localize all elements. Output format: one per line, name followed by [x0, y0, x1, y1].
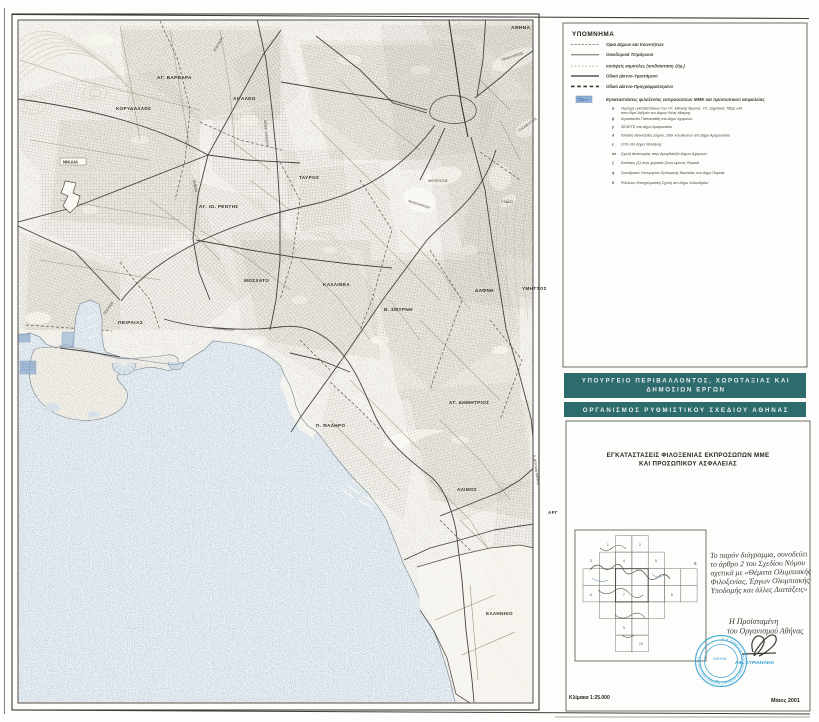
svg-text:ΥΜΗΤΤΟΣ: ΥΜΗΤΤΟΣ	[522, 286, 547, 291]
svg-text:ΥΠΟΥΡΓΕΙΟ ΠΕΡΙΒΑΛΛΟΝΤΟΣ, ΧΩΡΟΤ: ΥΠΟΥΡΓΕΙΟ ΠΕΡΙΒΑΛΛΟΝΤΟΣ, ΧΩΡΟΤΑΞΙΑΣ ΚΑΙ	[582, 378, 790, 385]
svg-text:ΑΓ. ΙΩ. ΡΕΝΤΗΣ: ΑΓ. ΙΩ. ΡΕΝΤΗΣ	[199, 204, 239, 209]
svg-text:ΟΡΓΑΝΙΣΜΟΣ ΡΥΘΜΙΣΤΙΚΟΥ ΣΧΕΔΙΟΥ: ΟΡΓΑΝΙΣΜΟΣ ΡΥΘΜΙΣΤΙΚΟΥ ΣΧΕΔΙΟΥ ΑΘΗΝΑΣ	[583, 407, 790, 414]
svg-text:ΟΤΕ στο Δήμο Παλλήνης: ΟΤΕ στο Δήμο Παλλήνης	[621, 143, 662, 147]
svg-text:ΚΑΙ ΠΡΟΣΩΠΙΚΟΥ ΑΣΦΑΛΕΙΑΣ: ΚΑΙ ΠΡΟΣΩΠΙΚΟΥ ΑΣΦΑΛΕΙΑΣ	[639, 461, 737, 468]
svg-text:9: 9	[623, 626, 625, 630]
svg-text:7: 7	[623, 593, 625, 597]
svg-text:ΑΘΗΝΑ: ΑΘΗΝΑ	[713, 657, 727, 661]
svg-text:ΔΗΜΟΣΙΩΝ ΕΡΓΩΝ: ΔΗΜΟΣΙΩΝ ΕΡΓΩΝ	[646, 387, 725, 394]
svg-text:θ: θ	[612, 181, 614, 185]
svg-text:ΔΑΦΝΗ: ΔΑΦΝΗ	[475, 288, 494, 293]
svg-text:ΕΛΛΗΝΙΚΟ: ΕΛΛΗΝΙΚΟ	[486, 611, 513, 616]
svg-text:3: 3	[590, 559, 592, 563]
svg-text:Η Προϊσταμένη: Η Προϊσταμένη	[728, 617, 778, 626]
svg-text:ΝΙΚΑΙΑ: ΝΙΚΑΙΑ	[63, 160, 79, 165]
svg-text:Συνεδριακό Υπουργείου Εμπορική: Συνεδριακό Υπουργείου Εμπορικής Ναυτιλία…	[620, 171, 725, 175]
svg-text:ΑΓ. ΔΗΜΗΤΡΙΟΣ: ΑΓ. ΔΗΜΗΤΡΙΟΣ	[449, 400, 489, 405]
svg-text:Εκτάσεις (Σ) στην χερσαία ζώνη: Εκτάσεις (Σ) στην χερσαία ζώνη λιμένος Π…	[621, 161, 700, 165]
svg-text:Κλίμακα 1:25.000: Κλίμακα 1:25.000	[569, 695, 610, 701]
svg-text:ΑΚΡΟΠΟΛΙΣ: ΑΚΡΟΠΟΛΙΣ	[428, 179, 448, 183]
svg-text:στ: στ	[612, 152, 616, 156]
svg-text:ΤΑΥΡΟΣ: ΤΑΥΡΟΣ	[299, 175, 319, 180]
svg-text:8: 8	[671, 593, 673, 597]
svg-text:ΣΤΑΔΙΟ: ΣΤΑΔΙΟ	[501, 200, 513, 204]
svg-text:10: 10	[639, 642, 643, 646]
svg-text:στον Άγιο Ανδρέα του Δήμου Νέα: στον Άγιο Ανδρέα του Δήμου Νέας Μάκρης	[621, 111, 691, 115]
svg-text:ΑΘΗΝΑ: ΑΘΗΝΑ	[511, 25, 531, 31]
svg-text:Οδικό Δίκτυο-Υφιστάμενο: Οδικό Δίκτυο-Υφιστάμενο	[606, 73, 658, 78]
svg-text:ΕΓΚΑΤΑΣΤΑΣΕΙΣ ΦΙΛΟΞΕΝΙΑΣ ΕΚΠΡΟ: ΕΓΚΑΤΑΣΤΑΣΕΙΣ ΦΙΛΟΞΕΝΙΑΣ ΕΚΠΡΟΣΩΠΩΝ ΜΜΕ	[607, 452, 770, 459]
svg-text:Β. ΣΜΥΡΝΗ: Β. ΣΜΥΡΝΗ	[384, 307, 413, 312]
svg-text:✶: ✶	[715, 679, 719, 685]
svg-text:ΑΡΓ: ΑΡΓ	[548, 510, 558, 515]
svg-text:Οδικό Δίκτυο-Προγραμματισμένο: Οδικό Δίκτυο-Προγραμματισμένο	[606, 84, 674, 89]
svg-text:ΜΟΣΧΑΤΟ: ΜΟΣΧΑΤΟ	[244, 278, 269, 283]
svg-text:Μάιος 2001: Μάιος 2001	[771, 698, 800, 704]
svg-text:ΑΓ. ΒΑΡΒΑΡΑ: ΑΓ. ΒΑΡΒΑΡΑ	[157, 75, 192, 80]
svg-text:ΑΙΓΑΛΕΩ: ΑΙΓΑΛΕΩ	[233, 96, 256, 101]
svg-text:ε: ε	[612, 143, 614, 147]
svg-text:ΚΟΡΥΔΑΛΛΟΣ: ΚΟΡΥΔΑΛΛΟΣ	[116, 106, 151, 111]
svg-text:5: 5	[655, 559, 657, 563]
svg-text:ΣΕΛΕΤΕ στο Δήμο Αμαρουσίου: ΣΕΛΕΤΕ στο Δήμο Αμαρουσίου	[620, 125, 672, 129]
svg-text:2: 2	[639, 543, 641, 547]
svg-text:ΚΑΛΛΙΘΕΑ: ΚΑΛΛΙΘΕΑ	[323, 282, 350, 287]
svg-text:Στρατόπεδο Παπαστάθη στο Δήμο: Στρατόπεδο Παπαστάθη στο Δήμο Αχαρνών	[620, 117, 693, 121]
svg-text:Οικοδομικά Τετράγωνα: Οικοδομικά Τετράγωνα	[606, 52, 653, 57]
svg-text:Σχολή Αστυνομίας στην Αμυγδαλέ: Σχολή Αστυνομίας στην Αμυγδαλέζα Δήμου Α…	[620, 152, 707, 156]
svg-text:ζ: ζ	[612, 161, 614, 165]
svg-text:ΠΕΙΡΑΙΑΣ: ΠΕΙΡΑΙΑΣ	[118, 320, 143, 326]
svg-text:του Οργανισμού Αθήνας: του Οργανισμού Αθήνας	[727, 627, 804, 636]
svg-text:Υποδομής και άλλες Διατάξεις»: Υποδομής και άλλες Διατάξεις»	[711, 585, 808, 596]
svg-text:ΑΛΙΜΟΣ: ΑΛΙΜΟΣ	[457, 487, 477, 492]
svg-text:Ράλλειος Επαγγελματική Σχολή σ: Ράλλειος Επαγγελματική Σχολή στο Δήμο Χα…	[621, 181, 708, 185]
svg-text:Έκταση ιδιοκτησίας Δήμου, ΟΕΚ: Έκταση ιδιοκτησίας Δήμου, ΟΕΚ και ιδιωτώ…	[621, 133, 730, 137]
svg-text:Ισοϋψείς καμπύλες (ισοδιάσταση: Ισοϋψείς καμπύλες (ισοδιάσταση 20μ.)	[606, 64, 685, 69]
svg-text:ΥΠΟΜΝΗΜΑ: ΥΠΟΜΝΗΜΑ	[572, 31, 614, 38]
svg-text:Όρια Δήμων και Κοινοτήτων: Όρια Δήμων και Κοινοτήτων	[606, 42, 664, 47]
svg-text:Περιοχή εγκαταστάσεων του Υπ.: Περιοχή εγκαταστάσεων του Υπ. Εθνικής Άμ…	[621, 107, 743, 111]
svg-text:6: 6	[590, 593, 592, 597]
svg-text:4: 4	[623, 559, 625, 563]
svg-text:Π. ΦΑΛΗΡΟ: Π. ΦΑΛΗΡΟ	[316, 423, 345, 428]
svg-text:1: 1	[607, 543, 609, 547]
